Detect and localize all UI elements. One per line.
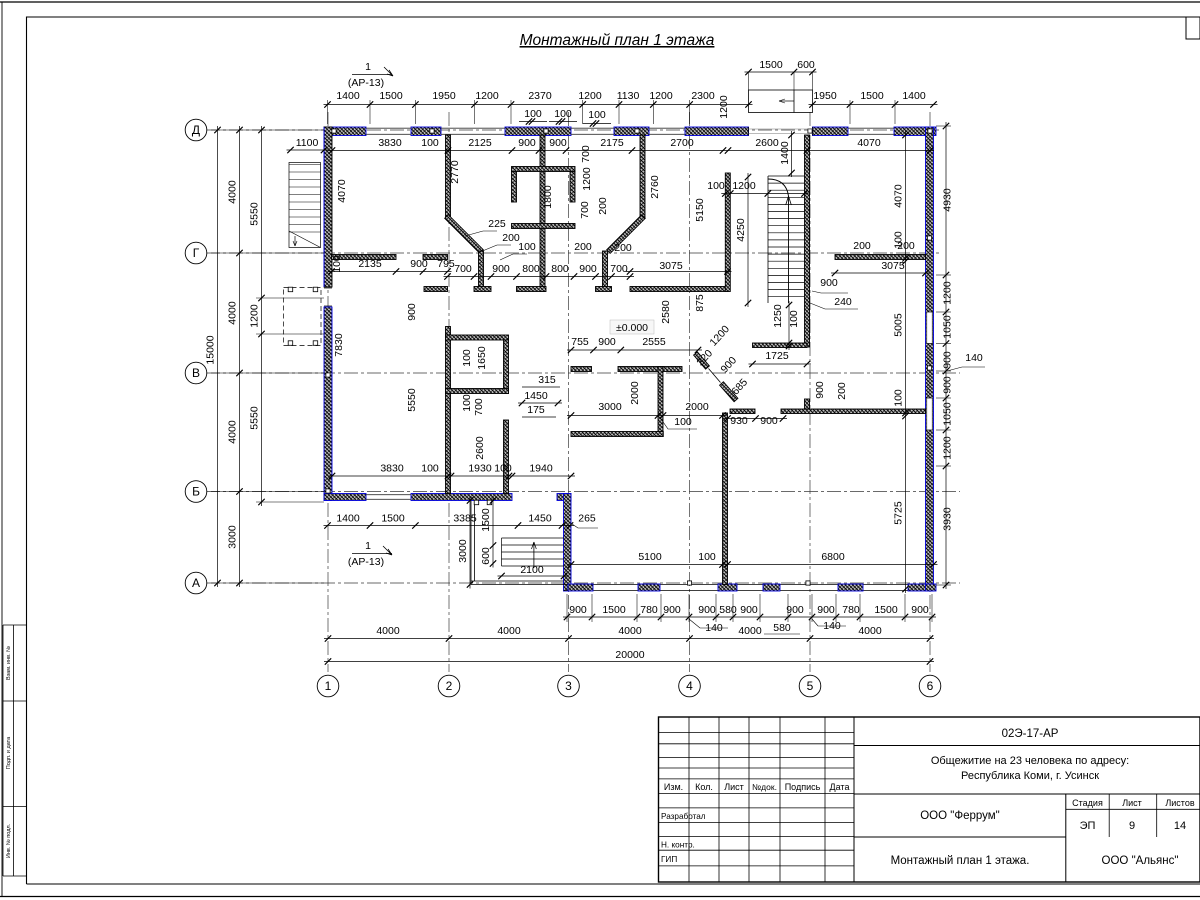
svg-text:1400: 1400: [779, 141, 791, 165]
svg-text:3075: 3075: [881, 260, 905, 272]
svg-text:Подп. и дата: Подп. и дата: [6, 736, 12, 769]
svg-text:4000: 4000: [227, 420, 239, 444]
svg-text:900: 900: [579, 263, 597, 275]
svg-text:Б: Б: [192, 485, 200, 499]
svg-text:1050: 1050: [942, 315, 954, 339]
svg-text:2: 2: [446, 679, 453, 693]
svg-text:100: 100: [461, 349, 473, 367]
svg-text:780: 780: [842, 604, 860, 616]
svg-text:3000: 3000: [457, 539, 469, 563]
svg-text:900: 900: [942, 351, 954, 369]
svg-text:Лист: Лист: [1122, 798, 1142, 808]
svg-text:6800: 6800: [821, 551, 845, 563]
svg-text:Листов: Листов: [1165, 798, 1194, 808]
svg-text:900: 900: [760, 415, 778, 427]
svg-text:ООО "Альянс": ООО "Альянс": [1102, 855, 1179, 867]
svg-text:200: 200: [574, 241, 592, 253]
svg-text:3: 3: [565, 679, 572, 693]
svg-text:02Э-17-АР: 02Э-17-АР: [1002, 728, 1059, 740]
svg-text:Н. контр.: Н. контр.: [661, 841, 695, 850]
svg-text:2600: 2600: [474, 436, 486, 460]
svg-text:1200: 1200: [942, 436, 954, 460]
svg-text:4070: 4070: [336, 179, 348, 203]
svg-text:4000: 4000: [227, 301, 239, 325]
svg-text:140: 140: [965, 352, 983, 364]
svg-text:900: 900: [942, 376, 954, 394]
svg-text:2000: 2000: [685, 401, 709, 413]
svg-text:2300: 2300: [691, 90, 715, 102]
svg-text:600: 600: [797, 59, 815, 71]
svg-text:100: 100: [893, 389, 905, 407]
svg-text:1200: 1200: [649, 90, 673, 102]
svg-text:Д: Д: [192, 123, 200, 137]
svg-text:1450: 1450: [528, 513, 552, 525]
svg-text:100: 100: [461, 394, 473, 412]
svg-text:4000: 4000: [618, 625, 642, 637]
svg-text:3000: 3000: [598, 401, 622, 413]
svg-text:2700: 2700: [670, 137, 694, 149]
svg-text:2760: 2760: [649, 175, 661, 199]
svg-text:900: 900: [663, 604, 681, 616]
svg-text:225: 225: [488, 218, 506, 230]
svg-text:2770: 2770: [449, 160, 461, 184]
svg-text:3830: 3830: [380, 463, 404, 475]
svg-text:А: А: [192, 576, 200, 590]
svg-text:580: 580: [773, 622, 791, 634]
svg-text:100: 100: [588, 109, 606, 121]
svg-text:100: 100: [698, 551, 716, 563]
svg-text:875: 875: [694, 294, 706, 312]
svg-text:265: 265: [578, 513, 596, 525]
svg-text:В: В: [192, 366, 200, 380]
svg-text:795: 795: [437, 258, 455, 270]
svg-text:2175: 2175: [600, 137, 624, 149]
svg-text:900: 900: [911, 604, 929, 616]
svg-text:5150: 5150: [694, 198, 706, 222]
svg-text:5005: 5005: [893, 313, 905, 337]
svg-text:900: 900: [817, 604, 835, 616]
svg-text:1500: 1500: [379, 90, 403, 102]
svg-text:4070: 4070: [857, 137, 881, 149]
svg-text:700: 700: [454, 263, 472, 275]
svg-text:4000: 4000: [227, 180, 239, 204]
svg-text:2600: 2600: [755, 137, 779, 149]
svg-text:ГИП: ГИП: [661, 855, 677, 864]
svg-text:ЭП: ЭП: [1080, 820, 1096, 832]
svg-text:1950: 1950: [432, 90, 456, 102]
svg-text:1200: 1200: [581, 167, 593, 191]
svg-text:1940: 1940: [529, 463, 553, 475]
svg-text:1400: 1400: [336, 513, 360, 525]
svg-text:1450: 1450: [524, 390, 548, 402]
svg-text:1200: 1200: [732, 180, 756, 192]
svg-text:14: 14: [1174, 820, 1186, 832]
svg-text:900: 900: [569, 604, 587, 616]
svg-text:3930: 3930: [942, 507, 954, 531]
svg-text:1500: 1500: [759, 59, 783, 71]
svg-text:3385: 3385: [453, 513, 477, 525]
svg-text:1200: 1200: [249, 304, 261, 328]
svg-text:1500: 1500: [874, 604, 898, 616]
svg-text:Взам. инв. №: Взам. инв. №: [6, 646, 12, 680]
svg-text:Подпись: Подпись: [785, 782, 821, 792]
svg-text:1250: 1250: [772, 304, 784, 328]
svg-text:ООО "Феррум": ООО "Феррум": [920, 810, 1000, 822]
svg-text:1: 1: [365, 540, 371, 552]
svg-text:240: 240: [834, 296, 852, 308]
svg-text:1200: 1200: [578, 90, 602, 102]
svg-text:1500: 1500: [602, 604, 626, 616]
svg-text:100: 100: [494, 463, 512, 475]
svg-text:2135: 2135: [358, 258, 382, 270]
svg-text:200: 200: [897, 240, 915, 252]
svg-text:1950: 1950: [813, 90, 837, 102]
svg-text:5100: 5100: [638, 551, 662, 563]
svg-text:Разработал: Разработал: [661, 812, 706, 821]
svg-text:Дата: Дата: [830, 782, 850, 792]
svg-text:800: 800: [551, 263, 569, 275]
svg-text:5550: 5550: [249, 406, 261, 430]
svg-text:1200: 1200: [718, 95, 730, 119]
svg-text:315: 315: [538, 374, 556, 386]
svg-text:100: 100: [518, 241, 536, 253]
svg-text:Стадия: Стадия: [1072, 798, 1103, 808]
svg-text:Монтажный план 1 этажа.: Монтажный план 1 этажа.: [891, 855, 1030, 867]
svg-text:2125: 2125: [468, 137, 492, 149]
svg-text:100: 100: [707, 180, 725, 192]
svg-text:900: 900: [820, 277, 838, 289]
svg-text:1130: 1130: [617, 90, 640, 102]
svg-text:5550: 5550: [249, 202, 261, 226]
svg-text:700: 700: [610, 263, 628, 275]
svg-text:2370: 2370: [528, 90, 552, 102]
svg-text:1: 1: [365, 61, 371, 73]
svg-text:1725: 1725: [765, 350, 789, 362]
svg-text:900: 900: [549, 137, 567, 149]
svg-text:755: 755: [571, 336, 589, 348]
svg-text:900: 900: [406, 303, 418, 321]
svg-text:580: 580: [719, 604, 737, 616]
svg-text:1800: 1800: [542, 185, 554, 209]
svg-text:Монтажный план 1 этажа: Монтажный план 1 этажа: [520, 32, 715, 49]
svg-text:2000: 2000: [629, 381, 641, 405]
svg-text:1500: 1500: [860, 90, 884, 102]
svg-text:780: 780: [640, 604, 658, 616]
svg-text:600: 600: [480, 547, 492, 565]
svg-text:№док.: №док.: [752, 782, 777, 792]
svg-text:4000: 4000: [497, 625, 521, 637]
svg-text:900: 900: [598, 336, 616, 348]
svg-text:Общежитие на 23 человека по ад: Общежитие на 23 человека по адресу:: [931, 755, 1129, 767]
svg-text:900: 900: [814, 381, 826, 399]
svg-text:Г: Г: [193, 246, 200, 260]
svg-text:1500: 1500: [381, 513, 405, 525]
svg-text:900: 900: [492, 263, 510, 275]
svg-text:100: 100: [554, 108, 572, 120]
svg-text:100: 100: [788, 310, 800, 328]
svg-text:100: 100: [421, 137, 439, 149]
svg-text:700: 700: [473, 398, 485, 416]
svg-text:100: 100: [524, 108, 542, 120]
svg-text:Республика Коми, г. Усинск: Республика Коми, г. Усинск: [961, 770, 1099, 782]
svg-text:Инв. № подл.: Инв. № подл.: [6, 823, 12, 858]
svg-text:4: 4: [686, 679, 693, 693]
svg-text:4250: 4250: [735, 218, 747, 242]
svg-text:1650: 1650: [476, 346, 488, 370]
svg-text:1400: 1400: [336, 90, 360, 102]
svg-text:930: 930: [730, 415, 748, 427]
svg-text:1500: 1500: [480, 508, 492, 532]
svg-text:3830: 3830: [378, 137, 402, 149]
svg-text:3075: 3075: [659, 260, 683, 272]
svg-text:5725: 5725: [893, 501, 905, 525]
svg-text:9: 9: [1129, 820, 1135, 832]
svg-text:700: 700: [580, 145, 592, 163]
svg-text:4930: 4930: [942, 188, 954, 212]
svg-text:900: 900: [740, 604, 758, 616]
svg-text:2580: 2580: [660, 300, 672, 324]
svg-text:3000: 3000: [227, 525, 239, 549]
svg-text:100: 100: [674, 416, 692, 428]
svg-text:1050: 1050: [942, 402, 954, 426]
svg-text:Кол.: Кол.: [695, 782, 713, 792]
svg-text:5: 5: [807, 679, 814, 693]
svg-text:6: 6: [927, 679, 934, 693]
svg-text:900: 900: [518, 137, 536, 149]
svg-text:4000: 4000: [738, 625, 762, 637]
svg-text:1400: 1400: [902, 90, 926, 102]
svg-text:1200: 1200: [475, 90, 499, 102]
svg-text:700: 700: [579, 201, 591, 219]
svg-text:200: 200: [614, 242, 632, 254]
svg-text:900: 900: [698, 604, 716, 616]
svg-text:Изм.: Изм.: [664, 782, 683, 792]
svg-text:900: 900: [410, 258, 428, 270]
svg-text:1930: 1930: [468, 463, 492, 475]
svg-text:200: 200: [853, 240, 871, 252]
svg-text:100: 100: [421, 463, 439, 475]
svg-text:±0.000: ±0.000: [616, 322, 648, 334]
svg-text:175: 175: [527, 404, 545, 416]
svg-text:15000: 15000: [205, 335, 217, 364]
svg-text:1100: 1100: [296, 137, 319, 149]
svg-text:900: 900: [786, 604, 804, 616]
svg-text:1200: 1200: [942, 281, 954, 305]
svg-text:(АР-13): (АР-13): [348, 556, 384, 568]
svg-text:200: 200: [597, 197, 609, 215]
svg-text:4000: 4000: [858, 625, 882, 637]
svg-text:4070: 4070: [893, 184, 905, 208]
svg-text:800: 800: [522, 263, 540, 275]
svg-text:(АР-13): (АР-13): [348, 77, 384, 89]
svg-text:20000: 20000: [615, 649, 644, 661]
svg-text:1: 1: [325, 679, 332, 693]
svg-text:7830: 7830: [333, 333, 345, 357]
svg-text:2555: 2555: [642, 336, 666, 348]
svg-text:Лист: Лист: [724, 782, 744, 792]
svg-text:5550: 5550: [406, 388, 418, 412]
svg-text:4000: 4000: [376, 625, 400, 637]
svg-text:2100: 2100: [520, 564, 544, 576]
svg-text:200: 200: [836, 382, 848, 400]
